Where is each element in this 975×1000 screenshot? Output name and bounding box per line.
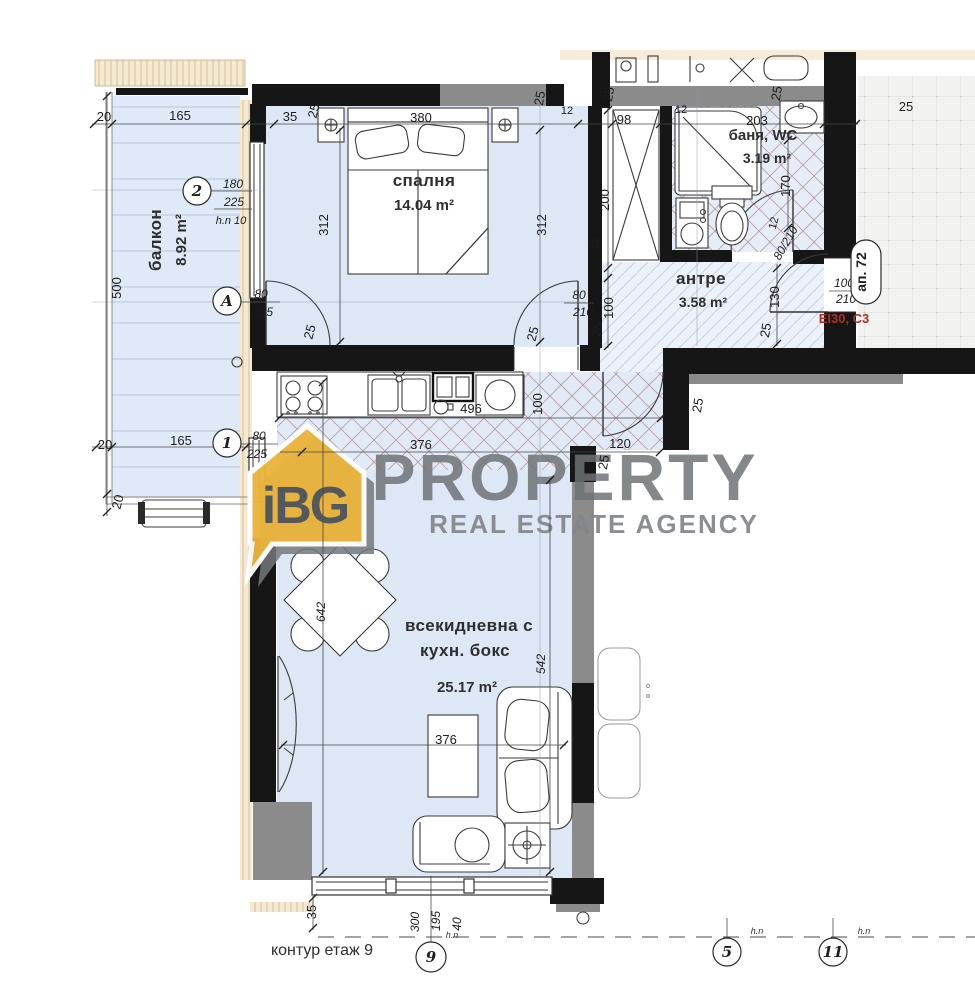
dim-label: 40 — [450, 917, 464, 931]
dim-label: 25 — [595, 454, 612, 471]
dim-label: 312 — [534, 214, 549, 236]
balcony-rail-top — [116, 88, 248, 95]
dim-label: 25 — [757, 322, 774, 339]
dim-label: 500 — [109, 277, 124, 299]
window-living-bottom — [312, 877, 552, 895]
dim-window2-height: 225 — [223, 195, 244, 209]
floor-contour-label: контур етаж 9 — [271, 942, 373, 959]
grid-bubble-2-label: 2 — [191, 182, 202, 200]
dim-doorA-width: 80 — [254, 287, 268, 301]
bed — [318, 108, 518, 274]
dim-label: 20 — [97, 109, 111, 124]
side-table — [505, 823, 550, 868]
area-label-hallway: 3.58 m² — [679, 294, 728, 310]
dim-label: 642 — [314, 602, 328, 622]
sofa — [497, 687, 572, 829]
wall-bedroom-bottom — [252, 345, 514, 371]
dim-label: 312 — [316, 214, 331, 236]
dim-label: 35 — [304, 905, 319, 919]
dim-label: 380 — [410, 110, 432, 125]
grid-bubble-1-label: 1 — [222, 434, 232, 452]
balcony-bench — [138, 500, 210, 527]
dim-window2-sill: h.n 10 — [216, 215, 247, 227]
room-label-living-2: кухн. бокс — [420, 641, 510, 660]
grid-bubble-9-label: 9 — [426, 948, 437, 966]
dim-label: 165 — [170, 433, 192, 448]
dim-label: 542 — [534, 654, 548, 674]
dim-label: 12 — [675, 104, 687, 116]
dim-label: 200 — [597, 189, 612, 211]
grid-bubble-11-label: 11 — [823, 943, 844, 961]
area-label-bathroom: 3.19 m² — [743, 150, 792, 166]
area-label-bedroom: 14.04 m² — [394, 197, 454, 214]
neighbor-sofa-right — [598, 648, 650, 798]
dim-door1-width: 80 — [252, 429, 266, 443]
wall-bedroom-top — [252, 84, 440, 106]
kitchen-counter — [277, 372, 524, 417]
dining-set — [284, 544, 396, 656]
wall-bath-bottom — [660, 250, 732, 262]
dim-label: 35 — [283, 109, 297, 124]
dim-label: 25 — [600, 86, 617, 103]
grid-bubble-A-label: A — [219, 292, 233, 310]
grid-bubble-5-label: 5 — [722, 943, 732, 961]
apartment-tag: ап. 72 — [853, 252, 869, 292]
room-label-bedroom: спалня — [393, 171, 456, 190]
dim-label: 195 — [429, 911, 443, 931]
coffee-table — [428, 715, 478, 797]
dim-label: 376 — [410, 437, 432, 452]
dim-label: 25 — [689, 397, 706, 414]
dim-label: 25 — [588, 321, 605, 338]
area-label-balcony: 8.92 m² — [173, 214, 190, 266]
dim-label: 25 — [899, 99, 913, 114]
dim-label: 100 — [601, 297, 616, 319]
area-label-living: 25.17 m² — [437, 679, 497, 696]
level-mark: h.n — [751, 926, 764, 936]
wardrobe — [613, 110, 659, 260]
floor-plan-page: iBG PROPERTY REAL ESTATE AGENCY — [0, 0, 975, 1000]
room-label-hallway: антре — [676, 269, 726, 288]
pillow-right — [416, 123, 465, 156]
dim-door1-height: 225 — [246, 447, 267, 461]
dim-label: 25 — [768, 85, 785, 102]
wall-corner-bottom-left — [253, 802, 312, 880]
dim-label: 376 — [435, 732, 457, 747]
level-mark: h.n — [858, 926, 871, 936]
dim-label: 120 — [609, 436, 631, 451]
logo-badge-text: iBG — [262, 477, 348, 535]
dim-label: 12 — [590, 238, 602, 250]
wall-hall-bottom — [663, 348, 975, 374]
dim-label: 496 — [460, 401, 482, 416]
dim-label: 300 — [408, 912, 422, 932]
dim-bedroom-door-height: 210 — [572, 305, 593, 319]
wall-bath-left — [660, 106, 672, 262]
dim-label: 170 — [778, 175, 793, 197]
logo-subtitle: REAL ESTATE AGENCY — [429, 509, 759, 539]
wall-vent-bottom — [577, 912, 589, 924]
room-label-bathroom: баня, WC — [729, 127, 798, 144]
level-mark: h.n — [446, 930, 459, 940]
room-label-living-1: всекидневна с — [405, 616, 533, 635]
room-label-balcony: балкон — [146, 209, 165, 271]
dim-label: 203 — [746, 113, 768, 128]
dim-label: 100 — [530, 393, 545, 415]
dim-label: 165 — [169, 108, 191, 123]
dim-window2-width: 180 — [223, 177, 243, 191]
bath-vanity — [676, 198, 708, 248]
dim-label: 25 — [531, 90, 548, 107]
wall-corner-bottom-right — [550, 878, 604, 904]
floor-plan-drawing: iBG PROPERTY REAL ESTATE AGENCY — [0, 0, 975, 1000]
dim-label: 98 — [617, 112, 631, 127]
dim-doorA-height: 235 — [252, 305, 273, 319]
dim-label: 20 — [98, 437, 112, 452]
armchair — [413, 816, 505, 872]
dim-label: 12 — [561, 105, 573, 117]
dim-label: 130 — [767, 286, 782, 308]
dim-bedroom-door-width: 80 — [572, 288, 586, 302]
fire-door-label: EI30, C3 — [819, 311, 870, 326]
wall-passage-right — [663, 374, 689, 450]
window-bedroom-balcony — [250, 142, 264, 298]
